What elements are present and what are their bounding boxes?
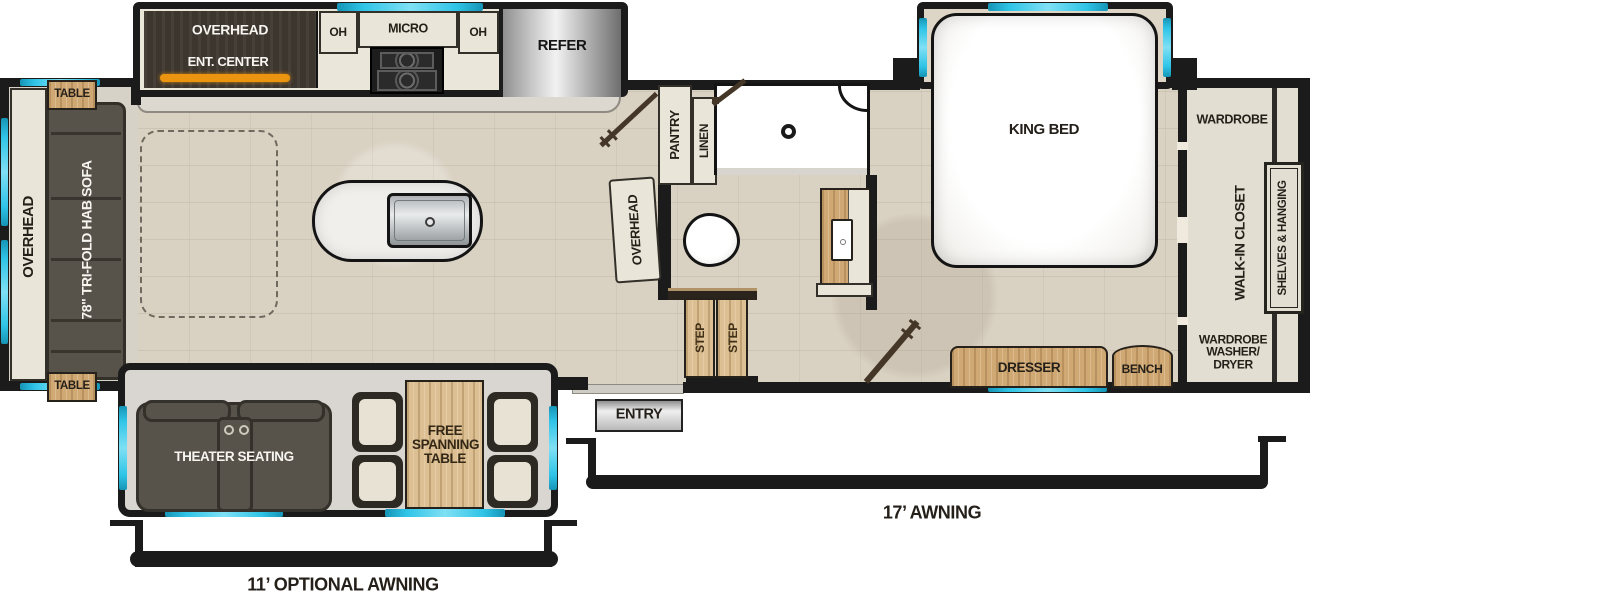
free-spanning-table-label: FREE SPANNING TABLE <box>412 424 478 466</box>
chair-cushion <box>494 462 531 501</box>
island-sink <box>387 193 472 248</box>
window-rear-left-2 <box>1 240 8 344</box>
stove-burner <box>377 70 437 91</box>
wall-top-right <box>1170 78 1310 88</box>
dresser-label: DRESSER <box>998 361 1060 375</box>
closet-door-gap1 <box>1177 142 1188 150</box>
dinette-chair <box>352 455 403 508</box>
awning11-bar <box>130 551 558 567</box>
bench-label: BENCH <box>1122 363 1163 375</box>
awning17-bracket-right-tick <box>1258 436 1286 442</box>
awning11-bracket-right-tick <box>551 520 577 526</box>
refer-label: REFER <box>538 38 587 54</box>
closet-door-gap2 <box>1177 217 1188 243</box>
sofa-seam <box>51 132 121 135</box>
window-living-slide-right <box>549 406 557 490</box>
window-rear-left-1 <box>1 118 8 226</box>
washer-dryer-line3: DRYER <box>1213 357 1253 371</box>
entry-label: ENTRY <box>616 407 663 422</box>
ent-overhead-label: OVERHEAD <box>192 23 268 38</box>
oh-right-label: OH <box>469 26 486 38</box>
rear-table-top-label: TABLE <box>54 89 89 101</box>
slide-travel-dashed-outline <box>140 130 278 318</box>
awning11-bracket-right-post <box>544 520 552 567</box>
walk-in-closet-label: WALK-IN CLOSET <box>1233 186 1248 301</box>
step-1-label: STEP <box>694 323 706 353</box>
shelves-hanging-label: SHELVES & HANGING <box>1278 180 1290 295</box>
chair-cushion <box>494 399 531 445</box>
awning17-bracket-left-tick <box>566 438 590 444</box>
wall-bath-vertical <box>658 178 671 300</box>
awning17-bracket-right-post <box>1260 436 1268 481</box>
closet-divider-top <box>1272 88 1277 164</box>
sofa-label: 78" TRI-FOLD HAB SOFA <box>80 160 95 319</box>
wall-closet-seg4 <box>1178 325 1187 382</box>
washer-dryer-label: WARDROBE WASHER/ DRYER <box>1188 333 1278 370</box>
wall-bedroom-stub-left <box>893 58 918 90</box>
dinette-chair <box>487 392 538 452</box>
bath-vanity-base <box>816 283 873 297</box>
awning17-bar <box>586 475 1268 489</box>
window-bedroom-slide-right <box>1163 18 1171 77</box>
dinette-chair <box>352 392 403 452</box>
chair-cushion <box>359 399 396 445</box>
ent-center-label: ENT. CENTER <box>188 55 269 69</box>
king-bed-label: KING BED <box>1009 122 1079 138</box>
wall-closet-seg2 <box>1178 150 1187 217</box>
awning17-label: 17’ AWNING <box>883 504 981 523</box>
window-kitchen-slide-top <box>337 3 483 11</box>
window-living-slide-bottom-2 <box>385 509 505 517</box>
king-bed <box>931 13 1158 268</box>
sink-drain <box>425 217 435 227</box>
shower-drain <box>781 124 796 139</box>
window-living-slide-left <box>119 406 127 490</box>
sofa-seam <box>51 350 121 353</box>
theater-seating-label: THEATER SEATING <box>174 450 294 464</box>
rear-overhead-label: OVERHEAD <box>21 196 37 278</box>
awning11-bracket-left-tick <box>110 520 136 526</box>
stove-burner <box>380 52 434 69</box>
wall-closet-seg3 <box>1178 243 1187 317</box>
chair-cushion <box>359 462 396 501</box>
linen-label: LINEN <box>698 124 710 158</box>
theater-cupholder <box>224 425 234 435</box>
micro-label: MICRO <box>388 23 428 36</box>
window-bedroom-slide-top <box>988 3 1108 11</box>
wardrobe-label: WARDROBE <box>1196 114 1267 127</box>
bath-sink-drain <box>840 239 846 245</box>
shower-door-hinge <box>712 97 719 104</box>
dinette-chair <box>487 455 538 508</box>
oh-left-label: OH <box>329 26 346 38</box>
floorplan-canvas: OVERHEAD 78" TRI-FOLD HAB SOFA TABLE TAB… <box>0 0 1600 597</box>
ent-center-accent-bar <box>160 74 290 82</box>
window-bedroom-slide-left <box>919 18 927 77</box>
entry-threshold <box>572 384 684 394</box>
cooktop-stove <box>370 47 444 94</box>
pantry-label: PANTRY <box>668 110 682 160</box>
theater-cupholder <box>239 425 249 435</box>
toilet <box>683 213 740 267</box>
bath-sink <box>831 219 853 261</box>
closet-door-gap3 <box>1177 317 1188 325</box>
awning11-label: 11’ OPTIONAL AWNING <box>247 576 438 595</box>
rear-table-bottom-label: TABLE <box>54 381 89 393</box>
wall-closet-seg1 <box>1178 88 1187 142</box>
step-2-label: STEP <box>727 323 739 353</box>
shower-pan-ledge <box>717 168 867 175</box>
